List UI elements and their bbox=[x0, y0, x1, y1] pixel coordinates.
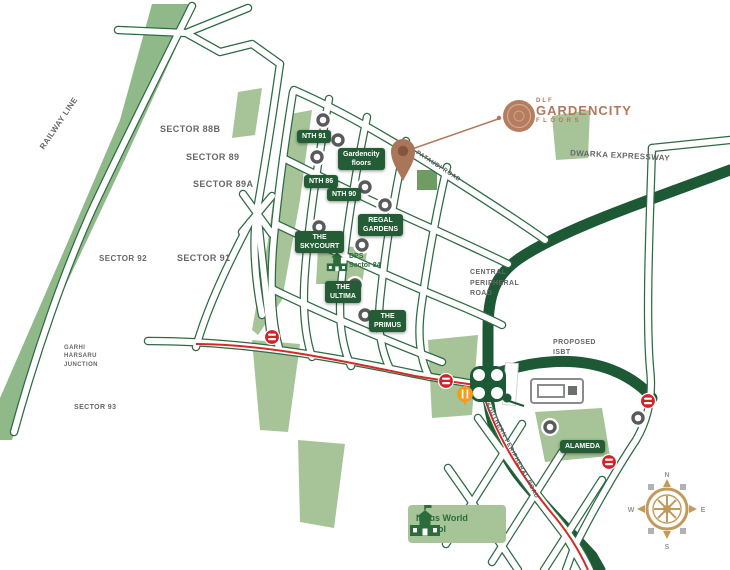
proposed-isbt-label: PROPOSED ISBT bbox=[553, 338, 596, 358]
project-label-the-ultima: THE ULTIMA bbox=[325, 281, 361, 303]
metro-station-icon bbox=[641, 394, 656, 409]
logo-medallion-icon bbox=[503, 100, 535, 132]
location-map: N E S W NTH 91 Gardencity floors NTH 86 … bbox=[0, 0, 730, 570]
dps-school-label: DPS Sector 84 bbox=[349, 253, 381, 271]
project-label-the-skycourt: THE SKYCOURT bbox=[295, 231, 344, 253]
project-label-alameda: ALAMEDA bbox=[560, 440, 605, 453]
project-label-regal-gardens: REGAL GARDENS bbox=[358, 214, 403, 236]
location-marker-icon bbox=[329, 131, 347, 149]
roads bbox=[14, 6, 730, 570]
location-marker-icon bbox=[308, 148, 326, 166]
brand-logo-sub-text: FLOORS bbox=[536, 118, 632, 124]
project-label-nth-86: NTH 86 bbox=[304, 175, 338, 188]
compass-east-label: E bbox=[701, 507, 706, 514]
compass-west-label: W bbox=[628, 507, 635, 514]
depot-structure bbox=[531, 379, 583, 403]
brand-logo: DLF GARDENCITY FLOORS bbox=[536, 98, 632, 124]
project-pin-leader bbox=[412, 116, 501, 149]
central-peripheral-road-label: CENTRAL PERIPHERAL ROAD bbox=[470, 268, 519, 300]
metro-station-icon bbox=[602, 455, 617, 470]
metro-station-icon bbox=[439, 374, 454, 389]
location-marker-icon bbox=[314, 111, 332, 129]
project-label-nth-91: NTH 91 bbox=[297, 130, 331, 143]
project-label-nth-90: NTH 90 bbox=[327, 188, 361, 201]
compass-icon: N E S W bbox=[628, 472, 706, 551]
brand-logo-main-text: GARDENCITY bbox=[536, 104, 632, 118]
sector-91-label: SECTOR 91 bbox=[177, 253, 230, 263]
indus-world-school-card: Indus World School bbox=[408, 505, 506, 543]
road-casings bbox=[14, 6, 730, 570]
sector-88b-label: SECTOR 88B bbox=[160, 124, 220, 134]
map-canvas: N E S W bbox=[0, 0, 730, 570]
sector-93-label: SECTOR 93 bbox=[74, 404, 116, 411]
school-icon bbox=[408, 505, 442, 537]
sector-89-label: SECTOR 89 bbox=[186, 152, 239, 162]
sector-92-label: SECTOR 92 bbox=[99, 254, 147, 263]
cloverleaf-interchange-icon bbox=[470, 366, 506, 402]
compass-north-label: N bbox=[664, 472, 669, 479]
project-label-gardencity-floors: Gardencity floors bbox=[338, 148, 385, 170]
metro-route-line bbox=[196, 344, 588, 570]
project-pin-icon bbox=[391, 139, 415, 181]
location-marker-icon bbox=[629, 409, 647, 427]
compass-south-label: S bbox=[665, 544, 670, 551]
location-marker-icon bbox=[376, 196, 394, 214]
project-label-the-primus: THE PRIMUS bbox=[369, 310, 406, 332]
sector-89a-label: SECTOR 89A bbox=[193, 179, 253, 189]
location-marker-icon bbox=[353, 236, 371, 254]
metro-station-icon bbox=[265, 330, 280, 345]
green-plot bbox=[417, 170, 437, 190]
location-marker-icon bbox=[541, 418, 559, 436]
garhi-harsaru-label: GARHI HARSARU JUNCTION bbox=[64, 344, 98, 369]
